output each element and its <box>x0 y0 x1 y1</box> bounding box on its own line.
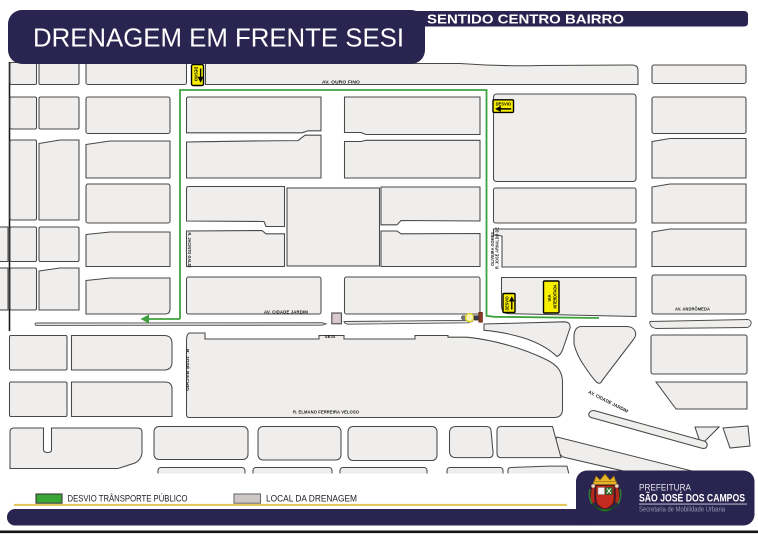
svg-text:DESVIO TRÂNSPORTE PÚBLICO: DESVIO TRÂNSPORTE PÚBLICO <box>68 494 188 504</box>
svg-text:R. JACINTO GALDI: R. JACINTO GALDI <box>187 233 192 268</box>
svg-text:INTERDITADA: INTERDITADA <box>552 285 557 309</box>
svg-text:SÃO JOSÉ DOS CAMPOS: SÃO JOSÉ DOS CAMPOS <box>639 492 745 505</box>
svg-text:DESVIO: DESVIO <box>194 67 199 82</box>
svg-text:DRENAGEM EM FRENTE SESI: DRENAGEM EM FRENTE SESI <box>33 23 404 53</box>
svg-text:LOCAL DA DRENAGEM: LOCAL DA DRENAGEM <box>266 494 357 504</box>
svg-text:Secretaria de Mobilidade Urban: Secretaria de Mobilidade Urbana <box>639 507 725 514</box>
svg-text:AV. ANDRÔMEDA: AV. ANDRÔMEDA <box>675 305 711 312</box>
svg-text:AV. CIDADE JARDIM: AV. CIDADE JARDIM <box>264 310 308 315</box>
svg-text:DESVIO: DESVIO <box>504 296 509 311</box>
svg-text:R. ELMANO FERREIRA VELOSO: R. ELMANO FERREIRA VELOSO <box>293 410 359 415</box>
svg-text:OLIVEIRA GOMES: OLIVEIRA GOMES <box>490 232 495 266</box>
svg-text:SENTIDO CENTRO BAIRRO: SENTIDO CENTRO BAIRRO <box>427 13 624 27</box>
svg-text:R. JOSÉ RACHID: R. JOSÉ RACHID <box>185 349 192 392</box>
svg-text:AV. OURO FINO: AV. OURO FINO <box>322 80 360 85</box>
svg-text:SESI: SESI <box>325 334 336 339</box>
svg-text:DESVIO: DESVIO <box>496 101 512 106</box>
